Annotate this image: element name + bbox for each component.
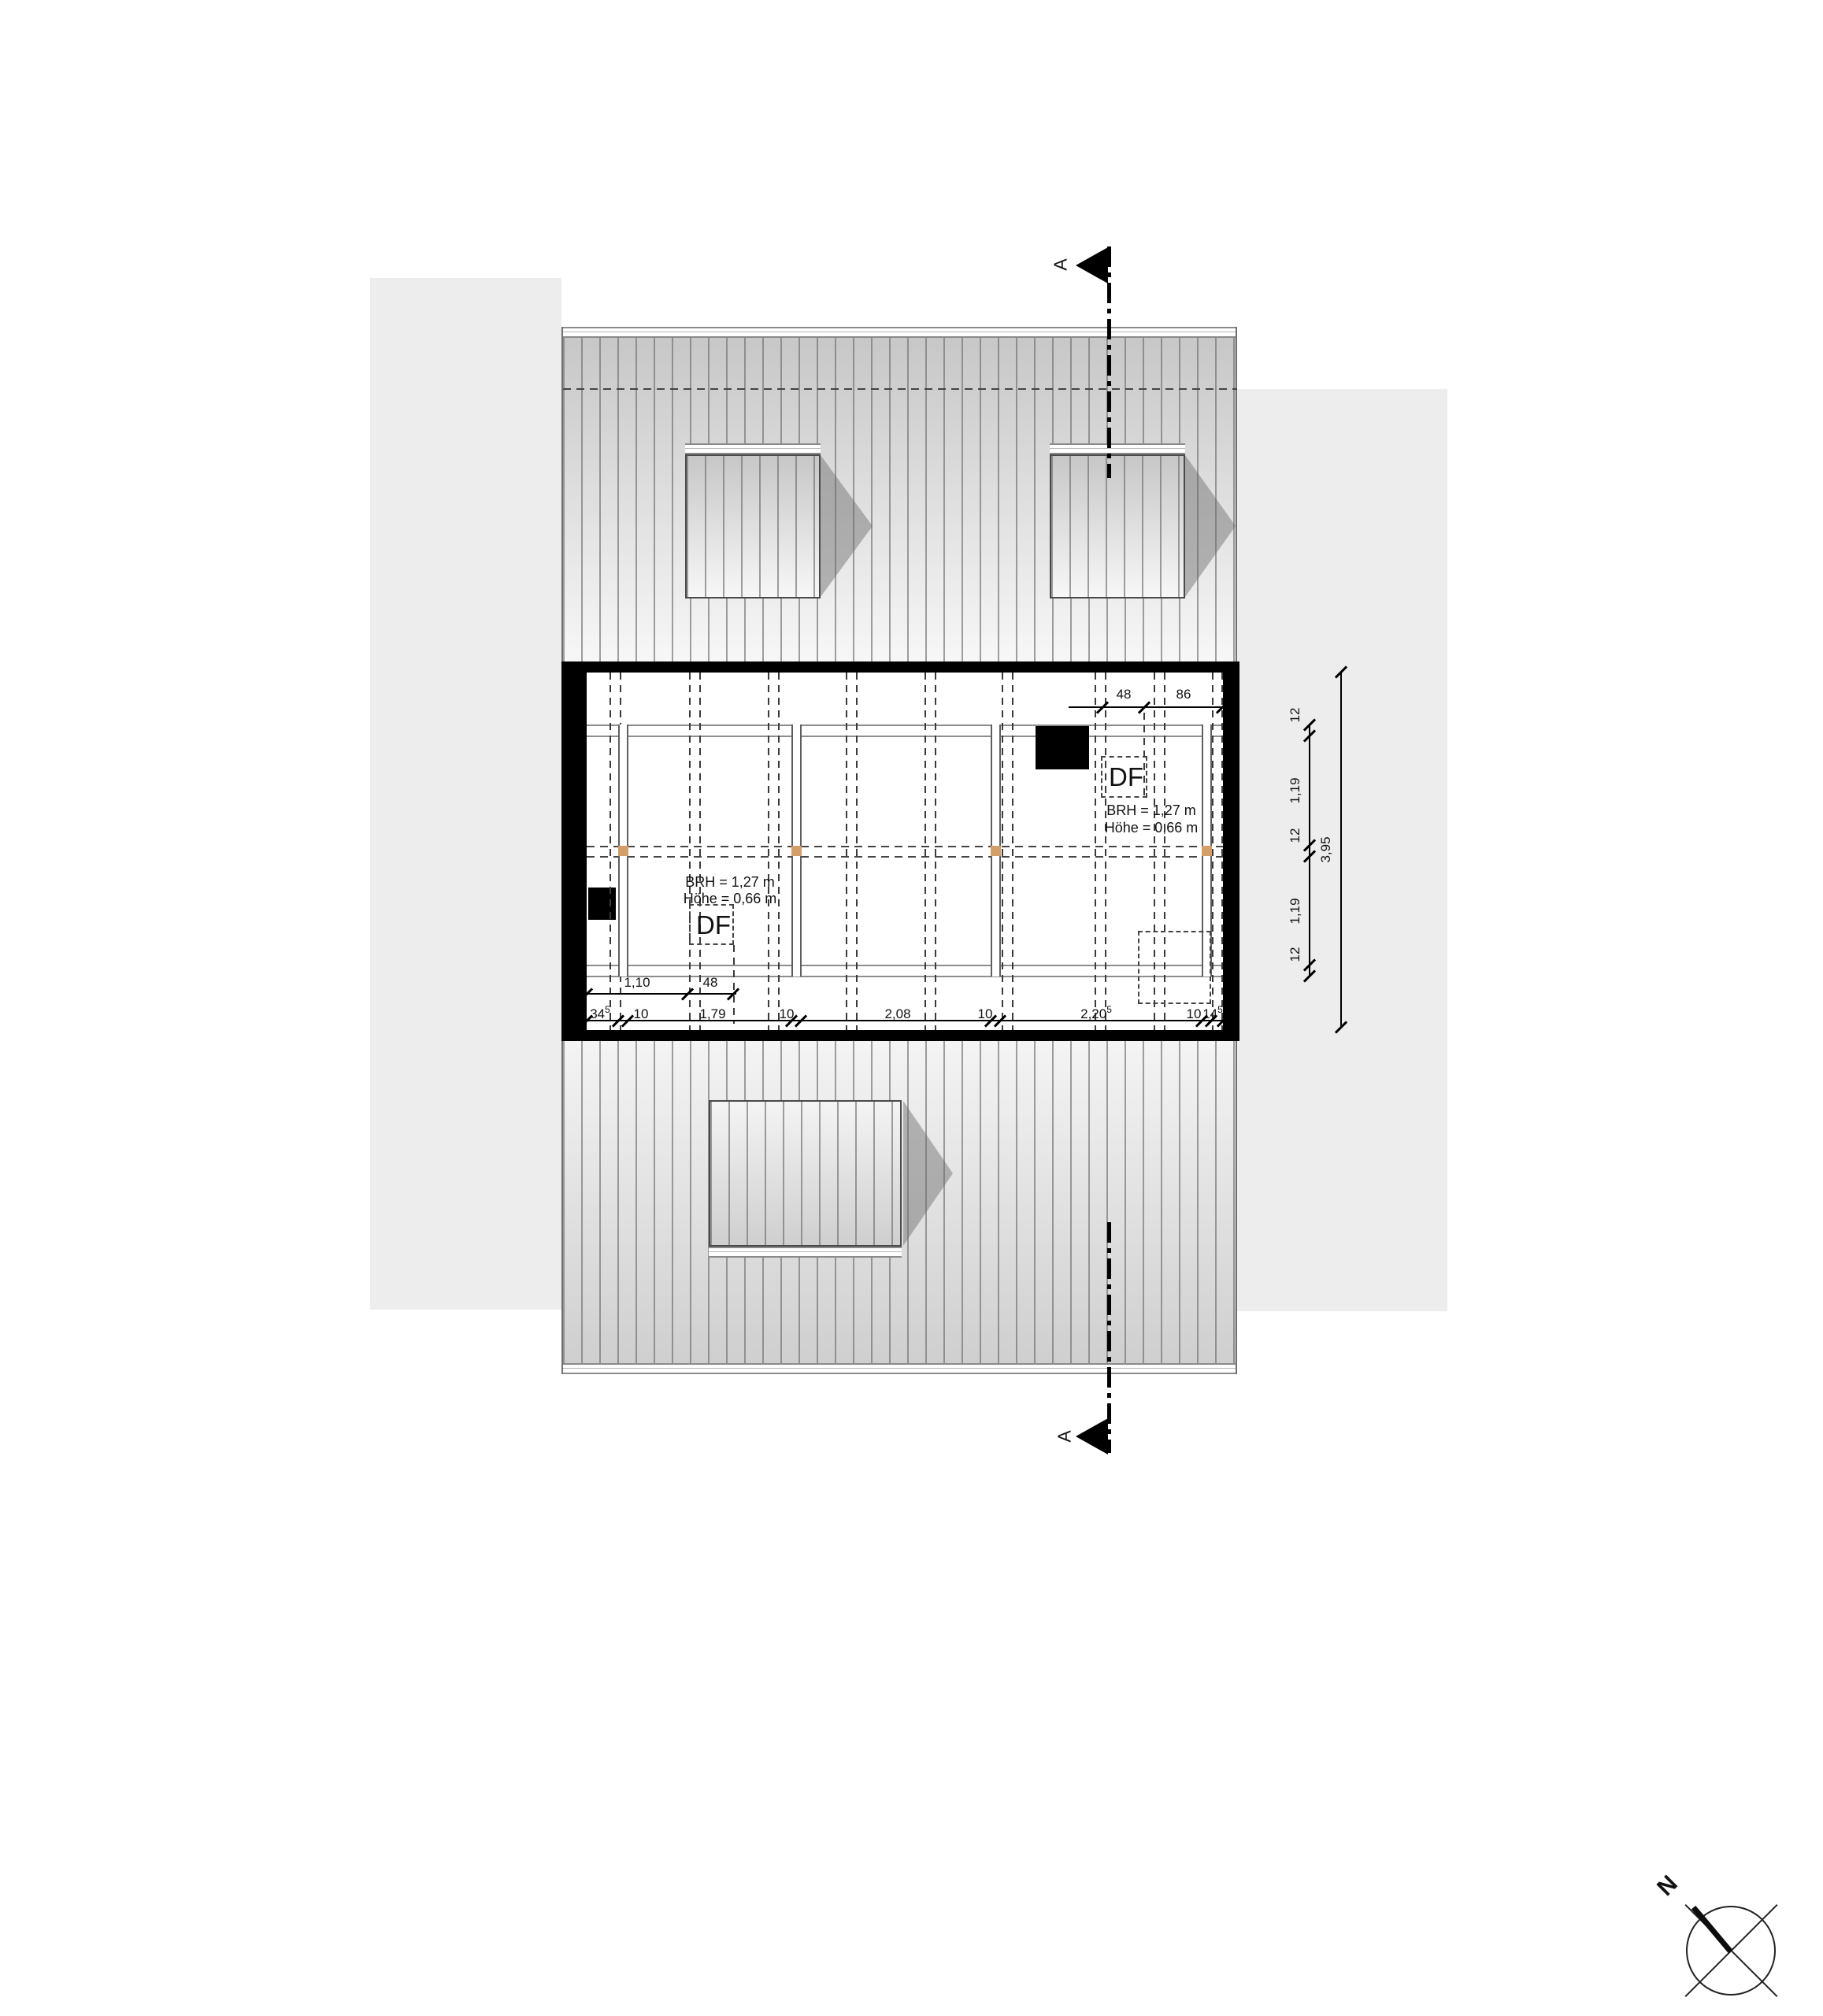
dim-line-right-inner (1309, 724, 1310, 976)
rafter-dashed-line (846, 673, 847, 1030)
dormer-shadow-icon (821, 455, 873, 597)
extension-line (733, 945, 735, 1024)
dim-sup: 5 (1106, 1004, 1112, 1015)
wall-right (1223, 661, 1239, 1041)
dim-label: 12 (1288, 828, 1302, 843)
wall-top (561, 661, 1239, 673)
dim-line-right-outer (1340, 672, 1342, 1028)
rafter-dashed-line (1105, 673, 1106, 1030)
rafter-dashed-line (1212, 673, 1213, 1030)
dim-label: 10 (1187, 1002, 1202, 1022)
dormer-body (685, 454, 821, 598)
section-arrow-top-icon (1076, 247, 1108, 283)
roof-ridge-band-upper (563, 327, 1236, 338)
purlin-line (587, 976, 1223, 977)
dim-label: 1,19 (1288, 777, 1302, 803)
rafter-dashed-line (768, 673, 769, 1030)
compass-north-label: N (1652, 1870, 1683, 1901)
dim-label: 48 (703, 975, 718, 991)
purlin-line (587, 736, 1223, 737)
dim-label: 1,19 (1288, 898, 1302, 924)
section-label-bottom: A (1054, 1430, 1076, 1442)
rafter-dashed-line (778, 673, 780, 1030)
beam-marker (618, 846, 628, 856)
dormer-shadow-icon (903, 1101, 953, 1246)
dim-label: 86 (1176, 687, 1191, 702)
floor-plan-canvas: DF BRH = 1,27 m Höhe = 0,66 m BRH = 1,27… (0, 0, 1823, 2016)
rafter-dashed-line (699, 673, 701, 1030)
rafter-dashed-line (924, 673, 926, 1030)
ridge-dashed-line (587, 846, 1223, 847)
roof-dashed-line-upper (563, 388, 1237, 390)
window-brh-left: BRH = 1,27 m (635, 874, 824, 891)
beam-marker (1202, 846, 1212, 856)
chimney (1036, 726, 1089, 769)
dim-value: 2,20 (1080, 1006, 1106, 1021)
dormer-body (1050, 454, 1185, 598)
rafter-dashed-line (1012, 673, 1013, 1030)
roof-window-code-right: DF (1109, 764, 1143, 790)
section-arrow-bottom-icon (1076, 1418, 1108, 1455)
ridge-dashed-line (587, 856, 1223, 858)
dim-line-top-right (1069, 706, 1228, 708)
rafter-dashed-line (935, 673, 936, 1030)
window-hoehe-right: Höhe = 0,66 m (1057, 820, 1246, 836)
wall-pier-left (588, 888, 616, 920)
dim-label: 2,08 (884, 1002, 910, 1022)
rafter-dashed-line (1002, 673, 1003, 1030)
beam-marker (991, 846, 1001, 856)
background-panel-left (370, 278, 561, 1310)
section-label-top: A (1050, 258, 1072, 270)
background-panel-right (1237, 389, 1447, 1311)
dim-label: 3,95 (1319, 836, 1333, 862)
dim-label: 12 (1288, 708, 1302, 723)
dim-label: 345 (590, 1002, 610, 1022)
dim-value: 10 (1187, 1006, 1202, 1021)
dim-value: 1,79 (699, 1006, 725, 1021)
wall-bottom (561, 1030, 1239, 1041)
window-brh-right: BRH = 1,27 m (1057, 802, 1246, 819)
dim-label: 1,79 (699, 1002, 725, 1022)
dormer-sill-bar (685, 443, 821, 454)
dormer-body (709, 1100, 902, 1247)
opening-outline-bottom-right (1138, 931, 1211, 1004)
rafter-dashed-line (1221, 673, 1223, 1030)
rafter-dashed-line (1095, 673, 1096, 1030)
dim-sup: 5 (1217, 1004, 1223, 1015)
dim-label: 1,10 (624, 975, 650, 991)
beam-marker (791, 846, 802, 856)
dim-label: 48 (1117, 687, 1132, 702)
dim-value: 2,08 (884, 1006, 910, 1021)
dormer-sill-bar (709, 1247, 902, 1258)
dormer-sill-bar (1050, 443, 1185, 454)
roof-eave-band-lower (563, 1363, 1236, 1374)
dim-label: 12 (1288, 947, 1302, 962)
rafter-dashed-line (610, 673, 611, 1030)
dim-value: 10 (634, 1006, 649, 1021)
extension-line (1143, 713, 1145, 799)
rafter-dashed-line (856, 673, 858, 1030)
dim-value: 34 (590, 1006, 605, 1021)
purlin-line (587, 965, 1223, 966)
dormer-shadow-icon (1185, 455, 1236, 597)
dim-sup: 5 (605, 1004, 610, 1015)
dim-line-bottom-row1 (587, 993, 736, 995)
dim-label: 2,205 (1080, 1002, 1112, 1022)
dim-label: 10 (634, 1002, 649, 1022)
roof-window-code-left: DF (696, 912, 731, 938)
rafter-dashed-line (689, 673, 691, 1030)
purlin-line (587, 724, 1223, 726)
wall-left (561, 661, 587, 1041)
